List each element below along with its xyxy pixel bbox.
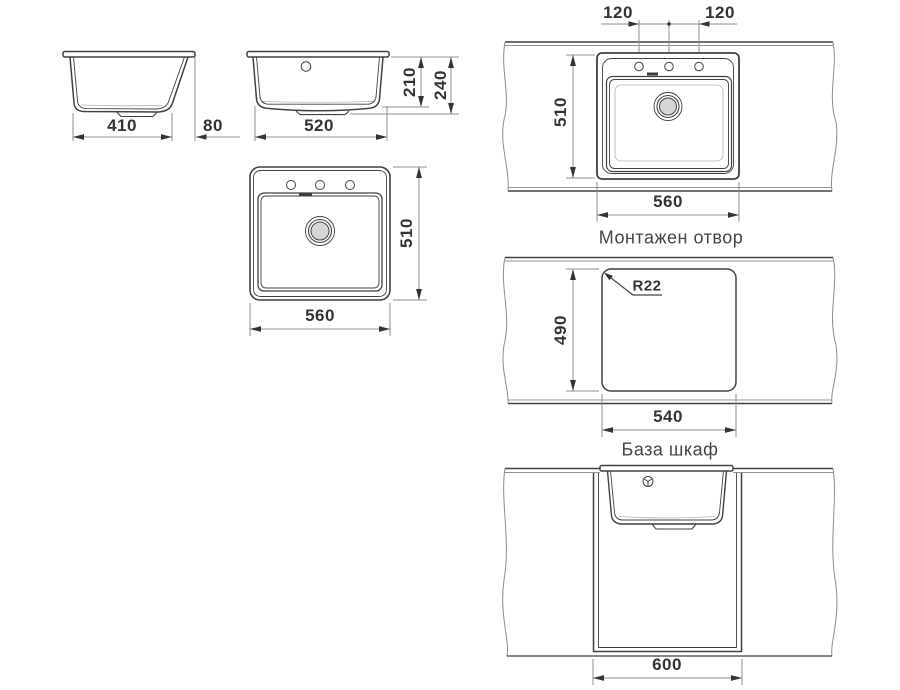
dim-front-bowl-depth: 210 xyxy=(400,67,420,97)
dim-cutout-corner-radius: R22 xyxy=(632,278,661,295)
dim-top-depth: 510 xyxy=(397,218,417,248)
dim-cabinet-width: 600 xyxy=(652,655,682,675)
dim-side-rear-deck: 80 xyxy=(203,116,223,136)
front-view xyxy=(247,52,459,142)
dim-front-width: 520 xyxy=(304,116,334,136)
dim-side-width: 410 xyxy=(107,116,137,136)
dim-mount-hole-spacing-right: 120 xyxy=(705,3,735,23)
top-view xyxy=(250,167,427,336)
mounting-view-label: Монтажен отвор xyxy=(599,228,743,249)
dim-cutout-depth: 490 xyxy=(551,315,571,345)
dim-mount-depth: 510 xyxy=(551,97,571,127)
cutout-view-label: База шкаф xyxy=(622,440,719,461)
dim-mount-width: 560 xyxy=(653,192,683,212)
dim-top-width: 560 xyxy=(305,306,335,326)
dim-mount-hole-spacing-left: 120 xyxy=(603,3,633,23)
technical-drawing-sheet: 410 80 520 210 240 560 510 120 120 510 5… xyxy=(0,0,900,690)
cabinet-view xyxy=(503,466,837,686)
dim-front-total-depth: 240 xyxy=(431,70,451,100)
drawing-canvas xyxy=(0,0,900,690)
dim-cutout-width: 540 xyxy=(653,407,683,427)
